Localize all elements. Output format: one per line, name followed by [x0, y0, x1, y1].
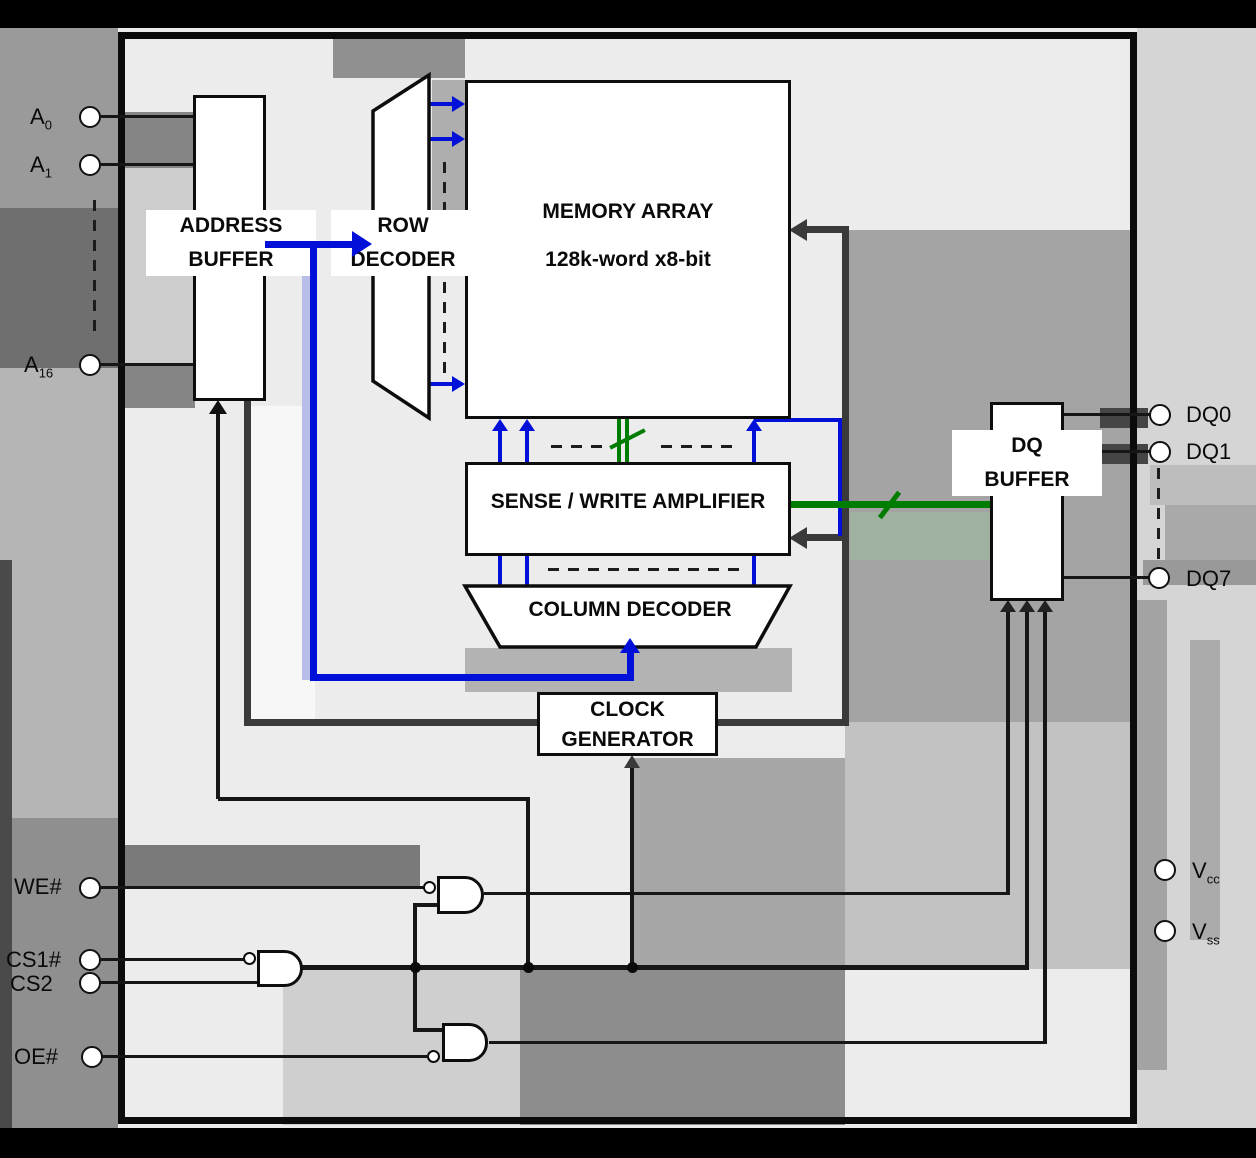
junction-dot: [523, 962, 534, 973]
we-gate-inverter-bubble: [423, 881, 436, 894]
address-buffer-label-line1: ADDRESS: [146, 215, 316, 237]
bg-patch: [1190, 640, 1220, 940]
pin-vss: [1154, 920, 1176, 942]
write-path-vertical-right: [842, 226, 849, 726]
a16-line: [101, 363, 193, 366]
address-buffer-feedback-vertical: [526, 797, 530, 969]
arrow-into-sense-amplifier: [789, 527, 807, 549]
pin-oe: [81, 1046, 103, 1068]
dq7-line: [1063, 576, 1150, 579]
dq-buffer-label-line2: BUFFER: [952, 469, 1102, 491]
cs-and-gate: [257, 950, 303, 987]
arrow-into-memory-array: [789, 219, 807, 241]
bit-lines-ellipsis-dash: [551, 445, 609, 448]
a1-line: [101, 163, 193, 166]
sram-block-diagram: ADDRESS BUFFER ROW DECODER MEMORY ARRAY …: [0, 0, 1256, 1158]
address-bus-vertical: [310, 241, 317, 681]
pin-dq7-label: DQ7: [1186, 566, 1231, 594]
bit-lines-ellipsis-dash: [661, 445, 739, 448]
pin-oe-label: OE#: [14, 1044, 58, 1072]
address-buffer-feedback-riser: [216, 414, 220, 799]
memory-array-title: MEMORY ARRAY: [465, 200, 791, 224]
dq0-line: [1063, 413, 1150, 416]
memory-array-subtitle: 128k-word x8-bit: [465, 248, 791, 272]
bit-line-n-arrow: [746, 419, 762, 431]
bit-line-2-arrow: [519, 419, 535, 431]
bg-patch: [0, 368, 118, 818]
clock-generator-label-line1: CLOCK: [542, 699, 713, 721]
oe-gate-input-stub: [413, 1028, 444, 1032]
oe-gate-output-line: [489, 1041, 1047, 1044]
pin-dq0: [1149, 404, 1171, 426]
pin-vcc: [1154, 859, 1176, 881]
write-path-to-amplifier: [804, 534, 842, 541]
pin-cs2: [79, 972, 101, 994]
cs1-gate-inverter-bubble: [243, 952, 256, 965]
clock-generator-label: CLOCK GENERATOR: [542, 696, 713, 754]
column-lines-ellipsis-dash: [548, 568, 740, 571]
bit-line-1-arrow: [492, 419, 508, 431]
bit-line-1: [498, 430, 502, 462]
address-bus-to-row-decoder: [265, 241, 353, 248]
pin-vcc-label: Vcc: [1192, 858, 1220, 886]
pin-vss-label: Vss: [1192, 919, 1220, 947]
arrow-into-column-decoder: [620, 638, 640, 653]
bg-patch: [0, 208, 118, 368]
bit-line-branch-vertical: [838, 418, 842, 536]
clock-generator-input-line: [630, 766, 634, 969]
row-line-1-arrow: [452, 96, 465, 112]
pin-a1: [79, 154, 101, 176]
write-path-vertical-left: [244, 400, 251, 726]
address-buffer-label-line2: BUFFER: [146, 249, 316, 271]
cs1-line: [101, 958, 244, 961]
bg-patch: [1150, 465, 1256, 505]
row-line-n-arrow: [452, 376, 465, 392]
address-bus-to-column-decoder: [627, 650, 634, 678]
a0-line: [101, 115, 193, 118]
bg-patch: [1165, 505, 1256, 560]
dq-buffer-label-line1: DQ: [952, 435, 1102, 457]
pin-dq0-label: DQ0: [1186, 402, 1231, 430]
we-gate-output-line: [484, 892, 1010, 895]
pin-cs1: [79, 949, 101, 971]
pin-a0-label: A0: [30, 104, 52, 132]
address-buffer-feedback-horizontal: [218, 797, 530, 801]
dq-buffer-label: DQ BUFFER: [952, 430, 1102, 496]
dq-control-arrow-2: [1019, 600, 1035, 612]
address-pins-ellipsis-dash: [93, 200, 96, 340]
pin-a0: [79, 106, 101, 128]
pin-we-label: WE#: [14, 874, 62, 902]
dq-control-arrow-3: [1037, 600, 1053, 612]
we-line: [101, 886, 424, 889]
bit-line-n: [752, 430, 756, 462]
address-bus-horizontal: [310, 674, 634, 681]
dq-control-arrow-1: [1000, 600, 1016, 612]
junction-dot: [410, 962, 421, 973]
junction-dot: [627, 962, 638, 973]
pin-we: [79, 877, 101, 899]
dq-control-line-1: [1006, 610, 1010, 895]
we-and-gate: [437, 876, 484, 914]
pin-a1-label: A1: [30, 152, 52, 180]
oe-line: [101, 1055, 427, 1058]
sense-write-amplifier-label: SENSE / WRITE AMPLIFIER: [465, 490, 791, 514]
row-line-2-arrow: [452, 131, 465, 147]
dq-pins-ellipsis-dash: [1157, 468, 1160, 560]
pin-a16-label: A16: [24, 352, 53, 380]
oe-and-gate: [442, 1023, 488, 1062]
arrow-into-row-decoder: [352, 231, 372, 257]
pin-cs2-label: CS2: [10, 971, 53, 999]
pin-a16: [79, 354, 101, 376]
bit-line-2: [525, 430, 529, 462]
dq-control-line-3: [1043, 610, 1047, 1043]
column-decoder-label: COLUMN DECODER: [505, 598, 755, 622]
oe-gate-inverter-bubble: [427, 1050, 440, 1063]
cs2-line: [101, 981, 258, 984]
clock-generator-label-line2: GENERATOR: [542, 729, 713, 751]
we-gate-input-stub: [413, 903, 439, 907]
write-path-to-array: [804, 226, 842, 233]
arrow-into-address-buffer: [209, 400, 227, 414]
arrow-into-clock-generator: [624, 755, 640, 768]
bg-patch: [0, 560, 12, 1128]
pin-dq7: [1148, 567, 1170, 589]
pin-dq1: [1149, 441, 1171, 463]
dq-control-line-2: [1025, 610, 1029, 969]
pin-dq1-label: DQ1: [1186, 439, 1231, 467]
bg-patch: [1137, 600, 1167, 1070]
